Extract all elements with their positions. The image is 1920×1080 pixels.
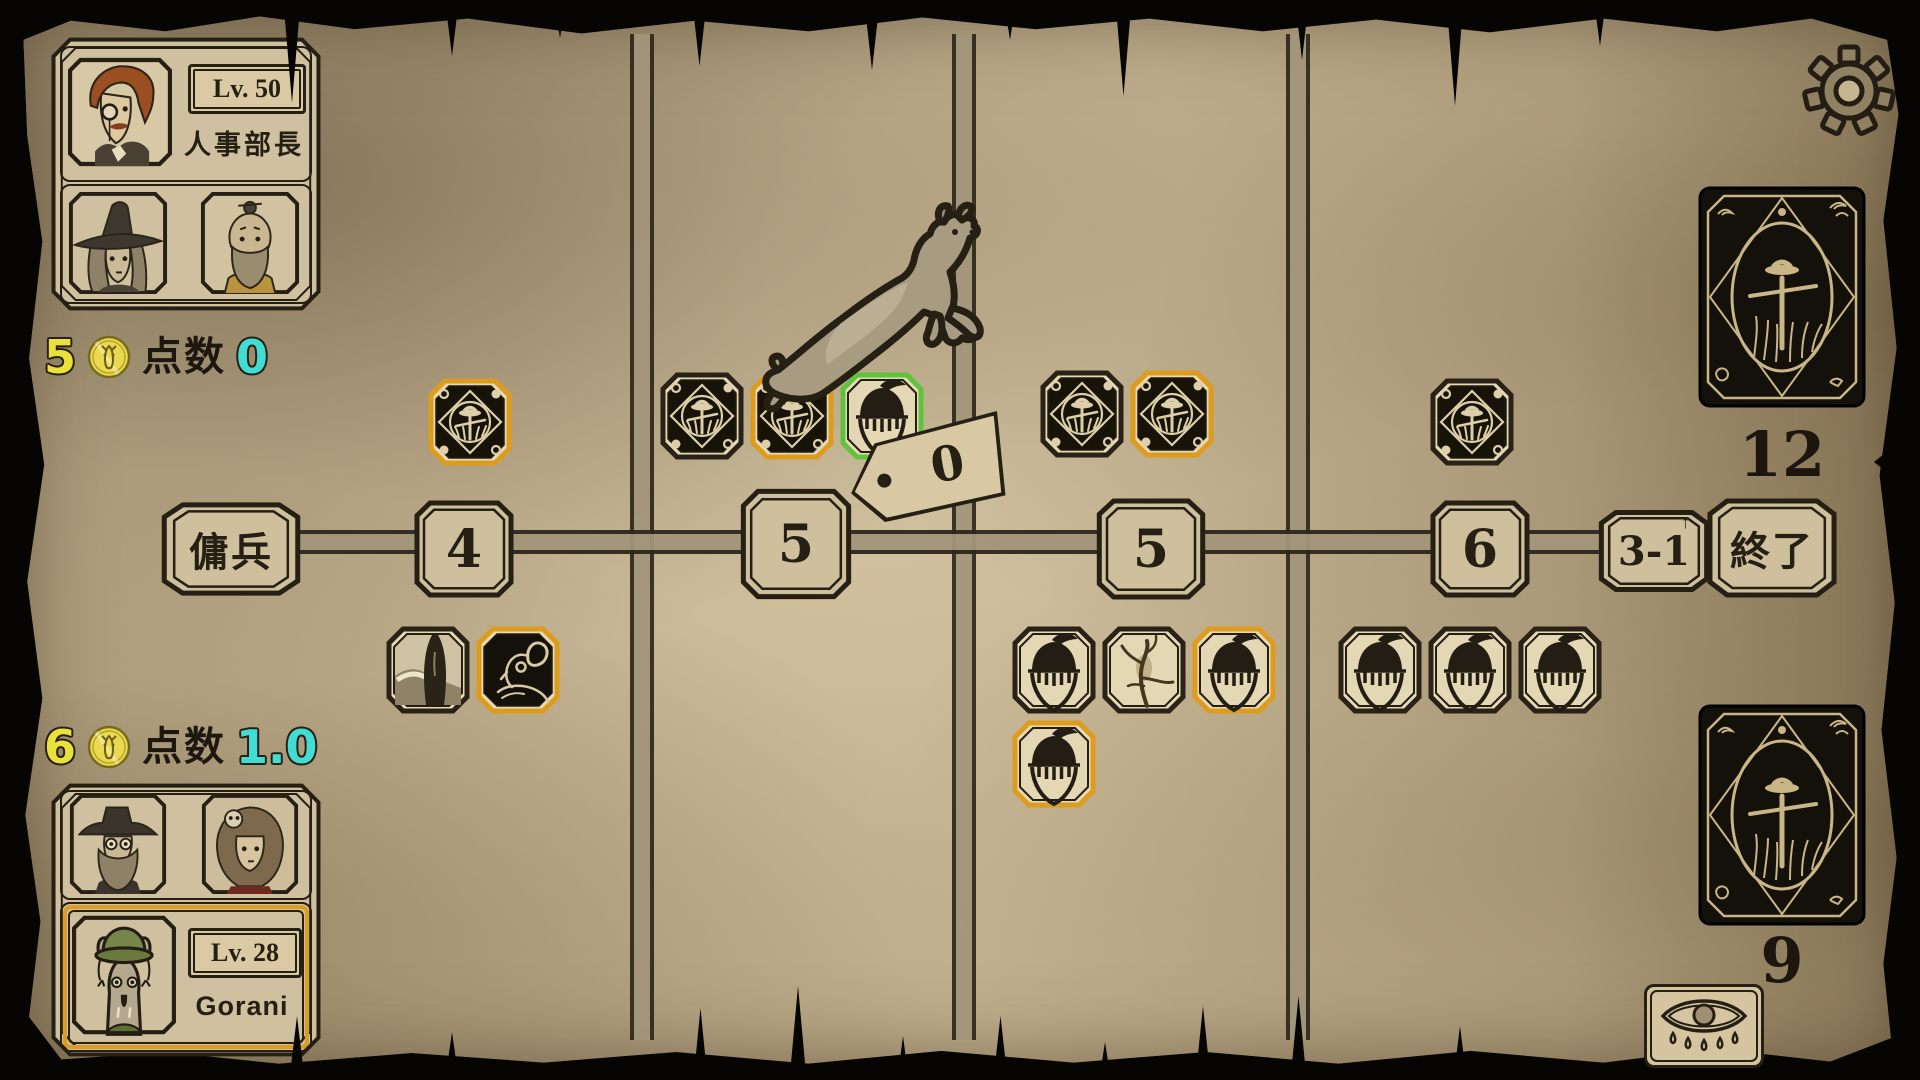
player-panel: Lv. 28 Gorani [48,780,324,1060]
track-node-3-1[interactable]: 3-1 ↑ [1598,510,1710,592]
node-label: 4 [414,500,514,598]
track-node-6[interactable]: 6 [1430,500,1530,598]
discard-pile[interactable] [1698,704,1866,926]
player-name: Gorani [182,986,302,1026]
player-level-badge: Lv. 28 [188,928,302,978]
card-scarecrow[interactable] [428,378,512,466]
reveal-button[interactable] [1644,984,1764,1068]
track-node-4[interactable]: 4 [414,500,514,598]
arrow-up-icon: ↑ [1681,512,1690,533]
card-veiled-figure[interactable] [386,626,470,714]
opponent-level: Lv. 50 [213,74,281,104]
draw-pile[interactable] [1698,186,1866,408]
portrait-witch [68,192,168,294]
player-row-frame-highlight: Lv. 28 Gorani [60,902,312,1052]
card-acorn-knight[interactable] [1012,626,1096,714]
eye-icon [1647,987,1761,1065]
card-scarecrow[interactable] [660,372,744,460]
player-level: Lv. 28 [211,938,279,968]
zone-above-4 [428,378,512,466]
card-acorn-knight[interactable] [1338,626,1422,714]
card-twig[interactable] [1102,626,1186,714]
node-label: 5 [740,488,852,600]
card-acorn-knight[interactable] [1012,720,1096,808]
card-acorn-knight[interactable] [1192,626,1276,714]
portrait-monocle-man [68,52,172,172]
card-acorn-knight[interactable] [1518,626,1602,714]
node-label: 6 [1430,500,1530,598]
torn-edge [1888,200,1914,240]
opponent-level-badge: Lv. 50 [188,64,306,114]
node-label: 終了 [1706,498,1838,598]
coin-icon [86,724,132,770]
card-scarecrow[interactable] [1130,370,1214,458]
score-label: 点数 [142,727,226,767]
portrait-skull-woman [200,794,300,894]
torn-edge [1888,650,1914,694]
portrait-hat-beard-man [68,794,168,894]
node-label: 5 [1096,498,1206,600]
zone-below-5b [1012,720,1096,808]
opponent-coin-count: 5 [44,334,76,380]
goat-pawn [744,186,1026,422]
node-label: 3-1 [1598,510,1710,592]
coin-icon [86,334,132,380]
track-node-5b[interactable]: 5 [1096,498,1206,600]
opponent-title: 人事部長 [180,120,308,164]
zone-below-5b [1012,626,1276,714]
card-ram[interactable] [476,626,560,714]
card-acorn-knight[interactable] [1428,626,1512,714]
player-coin-count: 6 [44,724,76,770]
portrait-gorani-deer [72,914,176,1036]
portrait-elder-topknot [200,192,300,294]
card-scarecrow[interactable] [1040,370,1124,458]
track-node-mercenary[interactable]: 傭兵 [160,502,302,596]
game-screen: 傭兵 4 5 5 6 3-1 ↑ [0,0,1920,1080]
draw-pile-count: 12 [1698,414,1866,494]
node-label: 傭兵 [160,502,302,596]
opponent-score-row: 5 点数 0 [44,334,268,380]
track-node-end[interactable]: 終了 [1706,498,1838,598]
track-node-5a[interactable]: 5 [740,488,852,600]
opponent-score: 0 [236,334,268,380]
torn-edge [8,420,36,460]
opponent-panel: Lv. 50 人事部長 [48,34,324,314]
zone-above-6 [1430,378,1514,466]
card-scarecrow[interactable] [1430,378,1514,466]
player-score-row: 6 点数 1.0 [44,724,318,770]
zone-below-6 [1338,626,1602,714]
score-label: 点数 [142,337,226,377]
zone-below-4 [386,626,560,714]
player-score: 1.0 [236,724,318,770]
torn-edge [8,690,32,738]
zone-above-5b [1040,370,1214,458]
settings-gear-icon[interactable] [1802,44,1896,138]
